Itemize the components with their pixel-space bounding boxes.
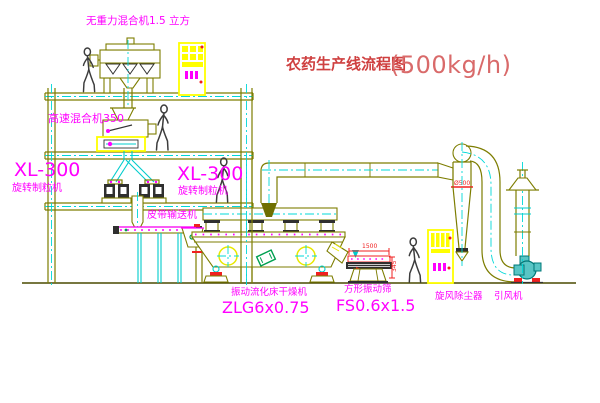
sieve-deck [346, 262, 392, 269]
indicator-dot [200, 81, 203, 84]
induced-draft-fan [511, 256, 543, 283]
control-cabinet-lower [428, 230, 453, 283]
granulator-base [102, 198, 131, 203]
stack-rain-cap [506, 170, 539, 190]
mixer-leg-right [147, 78, 153, 93]
label-gravity-mixer: 无重力混合机1.5 立方 [86, 14, 190, 27]
cyclone-to-fan-pipe [462, 146, 516, 282]
sieve-height-dim: 345 [391, 260, 398, 272]
label-granulator-left-model: XL-300 [14, 159, 80, 181]
mixer350-motor [148, 124, 156, 134]
control-cabinet-upper [179, 43, 205, 95]
mixer-leg-left [104, 78, 110, 93]
cabinet-display-glyph [185, 71, 198, 79]
indicator-dot [448, 267, 451, 270]
cad-flow-diagram: 1500 345 Ø500 [0, 0, 600, 403]
conveyor-legs [138, 233, 181, 283]
square-sieve-machine: 1500 345 [346, 243, 398, 284]
cyclone-separator: Ø500 [451, 142, 473, 266]
label-sieve-name: 方形振动筛 [344, 283, 392, 295]
sieve-pedestal [350, 269, 386, 281]
fluid-bed-dryer-machine [181, 203, 359, 283]
indicator-dot [449, 237, 452, 240]
mixer-drive-pulley [90, 55, 98, 66]
drawing-title: 农药生产线流程图 [285, 55, 406, 73]
dryer-foot-left [204, 266, 228, 282]
label-cyclone: 旋风除尘器 [435, 290, 483, 302]
drawing-title-capacity: (500kg/h) [390, 51, 511, 79]
belt-pulley-left [113, 226, 119, 234]
mixer-paddle-funnels [106, 64, 154, 74]
mixer-lid [106, 44, 154, 50]
label-belt-conveyor: 皮带输送机 [147, 208, 197, 221]
dryer-top-flange [192, 232, 345, 237]
duct-transition [438, 163, 453, 180]
indicator-dot [201, 46, 204, 49]
sieve-length-dim: 1500 [362, 243, 377, 250]
label-granulator-right-model: XL-300 [177, 163, 243, 185]
label-sieve-model: FS0.6x1.5 [336, 296, 415, 315]
label-dryer-name: 振动流化床干燥机 [231, 286, 308, 298]
cabinet-indicator-grid [182, 46, 203, 67]
dryer-hood-ports [204, 220, 335, 233]
label-dryer-model: ZLG6x0.75 [222, 298, 310, 317]
label-granulator-right-name: 旋转制粒机 [178, 184, 228, 197]
cabinet-display-glyph [433, 263, 446, 271]
label-fan: 引风机 [494, 290, 523, 302]
mixer-discharge-cone [120, 78, 140, 88]
exhaust-duct [261, 160, 453, 205]
label-high-speed-mixer: 高速混合机350 [48, 111, 124, 125]
label-granulator-left-name: 旋转制粒机 [12, 181, 62, 194]
dryer-foot-right [310, 266, 334, 282]
worker-floor2 [157, 105, 169, 150]
worker-ground [409, 238, 420, 282]
diagram-canvas: 1500 345 Ø500 [0, 0, 600, 403]
floor-slab-top [45, 93, 253, 100]
fan-motor [534, 263, 541, 271]
granulator-left-machine [102, 180, 131, 203]
